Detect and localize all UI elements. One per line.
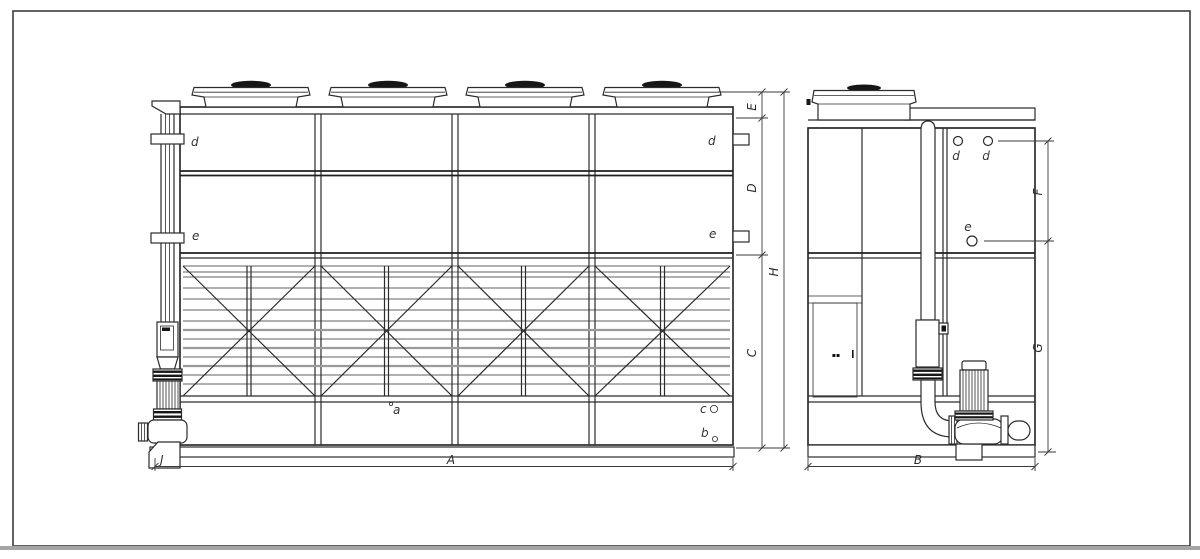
front-view: d e d e a c b J E <box>139 81 791 471</box>
label-e-right: e <box>709 227 716 241</box>
drawing-canvas: d e d e a c b J E <box>0 0 1200 559</box>
window-bottom-edge <box>0 546 1200 550</box>
label-d-2: d <box>982 149 990 163</box>
dim-label-H: H <box>767 267 781 276</box>
dim-label-F: F <box>1031 187 1045 195</box>
label-e-left: e <box>192 229 199 243</box>
dim-label-E: E <box>745 103 759 111</box>
port-e <box>967 236 977 246</box>
dim-label-C: C <box>745 348 759 357</box>
dim-label-B: B <box>914 453 922 467</box>
access-door-marks: ▪▪ <box>832 352 840 359</box>
dim-label-G: G <box>1031 343 1045 352</box>
label-c: c <box>700 402 707 416</box>
port-d-2 <box>984 137 993 146</box>
label-d-1: d <box>952 149 960 163</box>
side-view: ▪▪ <box>805 85 1057 472</box>
cowl-bolt <box>807 99 811 105</box>
label-d-right: d <box>708 134 716 148</box>
dim-label-D: D <box>745 183 759 192</box>
label-d-left: d <box>191 135 199 149</box>
port-d-1 <box>954 137 963 146</box>
casing-front <box>180 107 733 445</box>
pump-pedestal <box>956 444 982 460</box>
label-b: b <box>701 426 709 440</box>
label-a: a <box>393 403 400 417</box>
dim-label-A: A <box>446 453 455 467</box>
base-rail-front <box>150 447 734 457</box>
label-e-side: e <box>964 220 971 234</box>
cooling-tower-drawing: d e d e a c b J E <box>0 0 1200 559</box>
